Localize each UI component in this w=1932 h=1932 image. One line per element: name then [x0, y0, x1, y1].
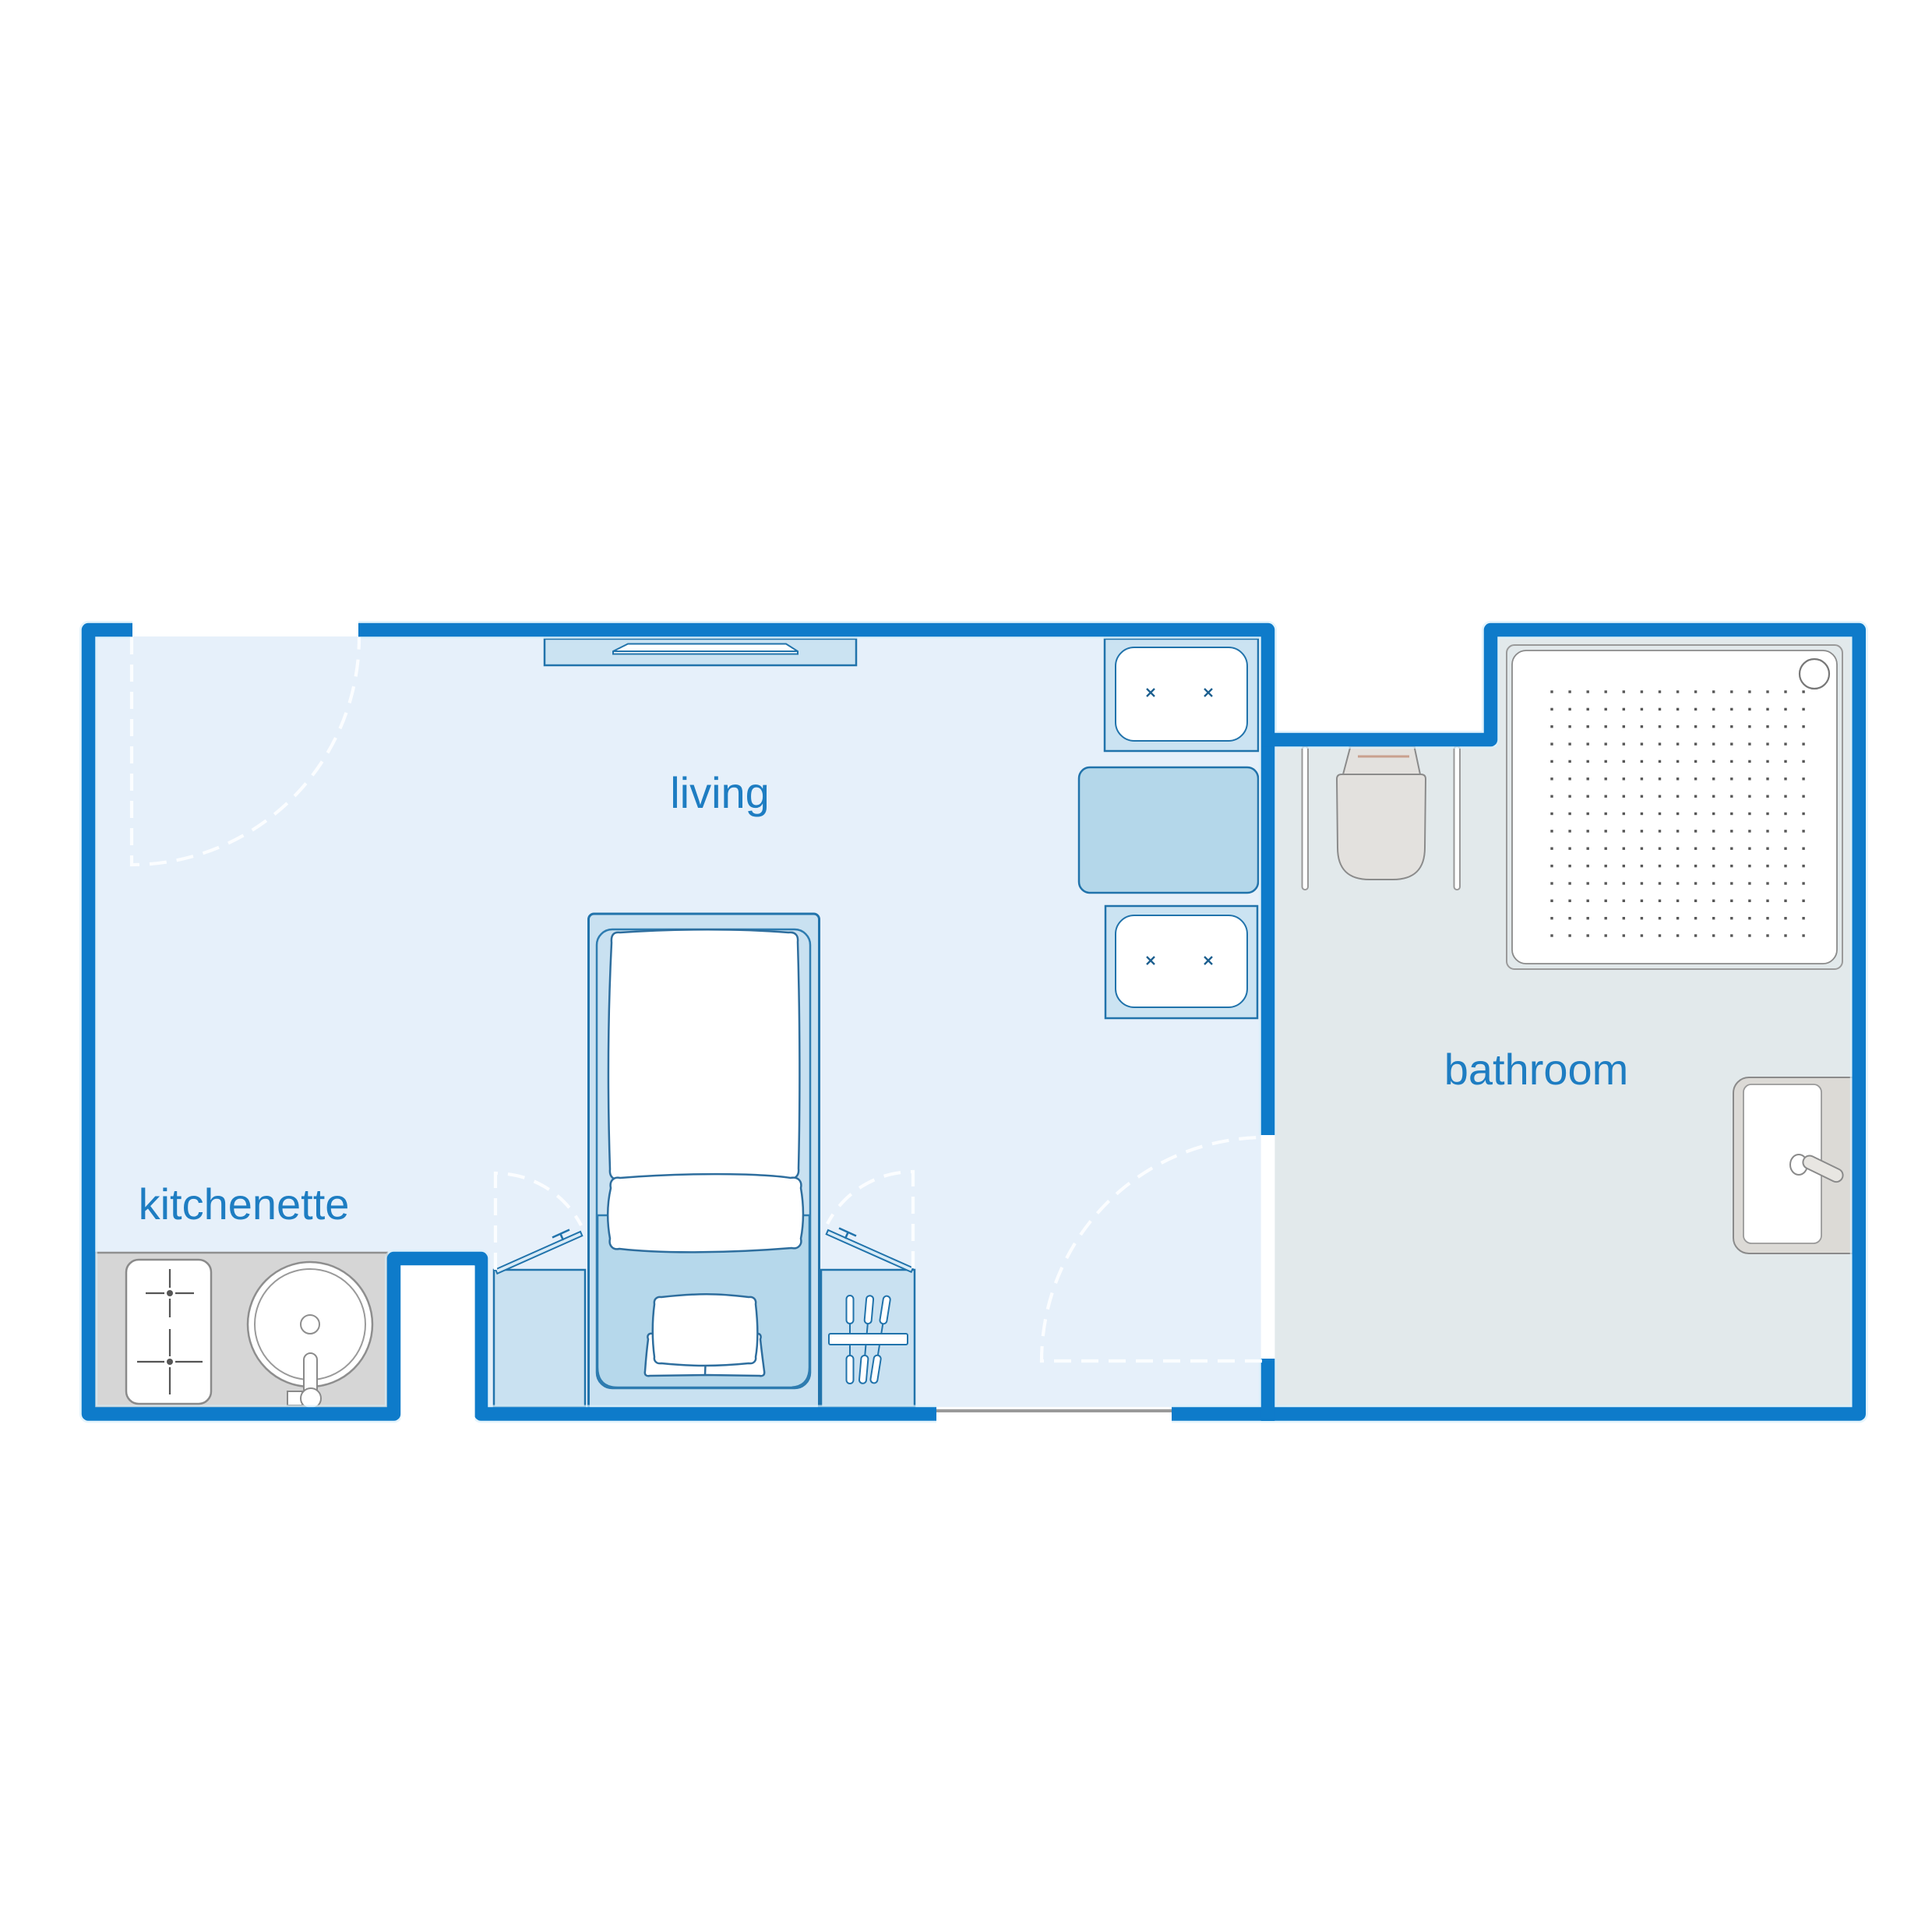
svg-text:bathroom: bathroom [1444, 1045, 1629, 1094]
svg-text:kitchenette: kitchenette [139, 1179, 350, 1229]
svg-text:living: living [670, 768, 770, 817]
